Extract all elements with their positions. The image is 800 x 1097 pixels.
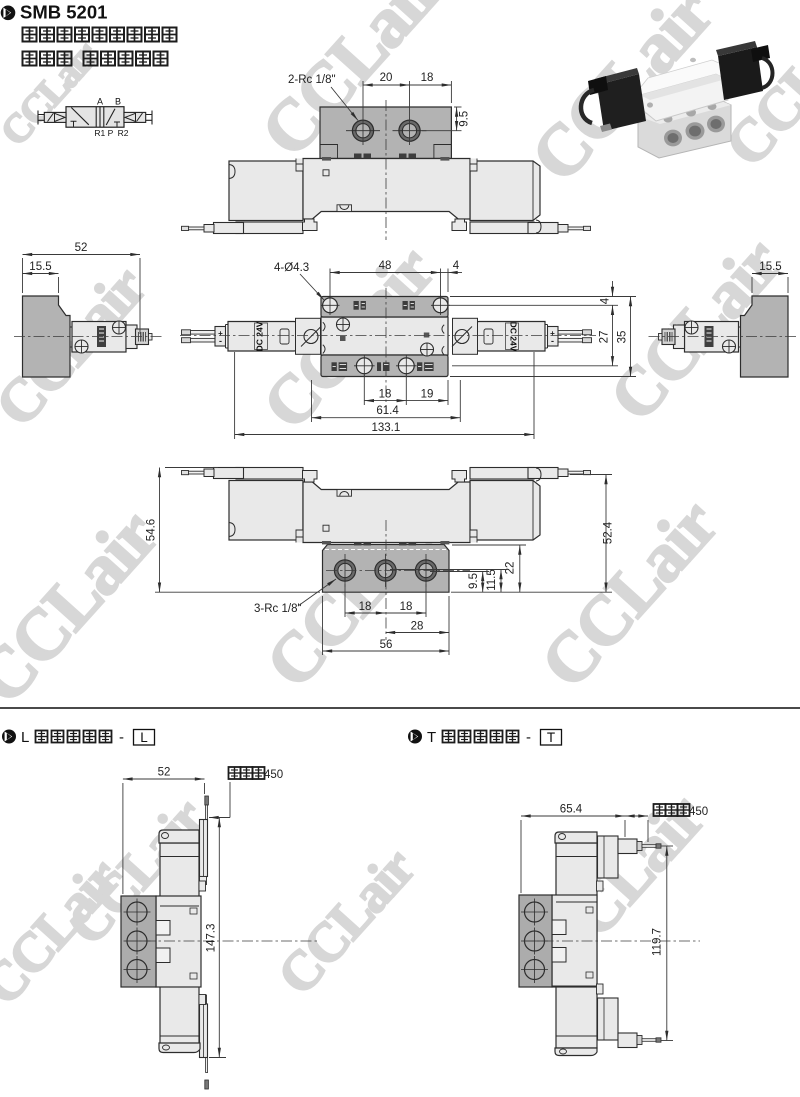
svg-text:15.5: 15.5 bbox=[759, 261, 781, 273]
svg-text:T: T bbox=[427, 729, 436, 746]
svg-text:65.4: 65.4 bbox=[560, 804, 583, 816]
svg-text:18: 18 bbox=[359, 601, 372, 613]
svg-text:133.1: 133.1 bbox=[372, 422, 401, 434]
svg-text:9.5: 9.5 bbox=[468, 573, 480, 589]
svg-text:4: 4 bbox=[600, 297, 612, 304]
svg-text:SMB 5201: SMB 5201 bbox=[20, 2, 107, 23]
svg-text:18: 18 bbox=[379, 389, 392, 401]
svg-text:-: - bbox=[551, 336, 554, 346]
svg-text:R1: R1 bbox=[94, 128, 105, 138]
svg-text:3-Rc 1/8": 3-Rc 1/8" bbox=[254, 603, 302, 615]
svg-text:R2: R2 bbox=[118, 128, 129, 138]
svg-text:35: 35 bbox=[617, 331, 629, 344]
svg-text:B: B bbox=[115, 97, 121, 107]
svg-text:450: 450 bbox=[264, 769, 283, 781]
svg-text:56: 56 bbox=[380, 639, 393, 651]
svg-text:P: P bbox=[108, 128, 114, 138]
svg-text:52: 52 bbox=[75, 242, 88, 254]
svg-text:22: 22 bbox=[505, 562, 517, 575]
svg-text:20: 20 bbox=[380, 72, 393, 84]
svg-text:2-Rc 1/8": 2-Rc 1/8" bbox=[288, 74, 336, 86]
svg-text:19: 19 bbox=[421, 389, 434, 401]
svg-text:27: 27 bbox=[599, 331, 611, 344]
svg-text:4: 4 bbox=[453, 260, 460, 272]
svg-text:61.4: 61.4 bbox=[376, 405, 399, 417]
svg-text:119.7: 119.7 bbox=[652, 928, 664, 956]
svg-text:147.3: 147.3 bbox=[206, 924, 218, 953]
svg-text:54.6: 54.6 bbox=[146, 519, 158, 541]
svg-text:52.4: 52.4 bbox=[603, 521, 615, 544]
svg-text:450: 450 bbox=[689, 806, 708, 818]
svg-text:18: 18 bbox=[400, 601, 413, 613]
svg-text:L: L bbox=[21, 729, 29, 746]
svg-text:T: T bbox=[547, 730, 555, 745]
svg-text:A: A bbox=[97, 97, 103, 107]
svg-text:15.5: 15.5 bbox=[29, 261, 51, 273]
svg-text:9.5: 9.5 bbox=[459, 111, 471, 127]
svg-text:52: 52 bbox=[158, 767, 171, 779]
svg-text:L: L bbox=[140, 730, 148, 745]
svg-text:28: 28 bbox=[411, 621, 424, 633]
svg-text:4-Ø4.3: 4-Ø4.3 bbox=[274, 262, 309, 274]
svg-text:11.5: 11.5 bbox=[486, 569, 498, 591]
svg-text:48: 48 bbox=[379, 260, 392, 272]
svg-text:18: 18 bbox=[421, 72, 434, 84]
svg-text:DC 24V: DC 24V bbox=[509, 322, 519, 352]
svg-text:-: - bbox=[219, 336, 222, 346]
svg-text:-: - bbox=[119, 729, 124, 746]
svg-text:DC 24V: DC 24V bbox=[255, 321, 265, 351]
svg-text:-: - bbox=[526, 729, 531, 746]
